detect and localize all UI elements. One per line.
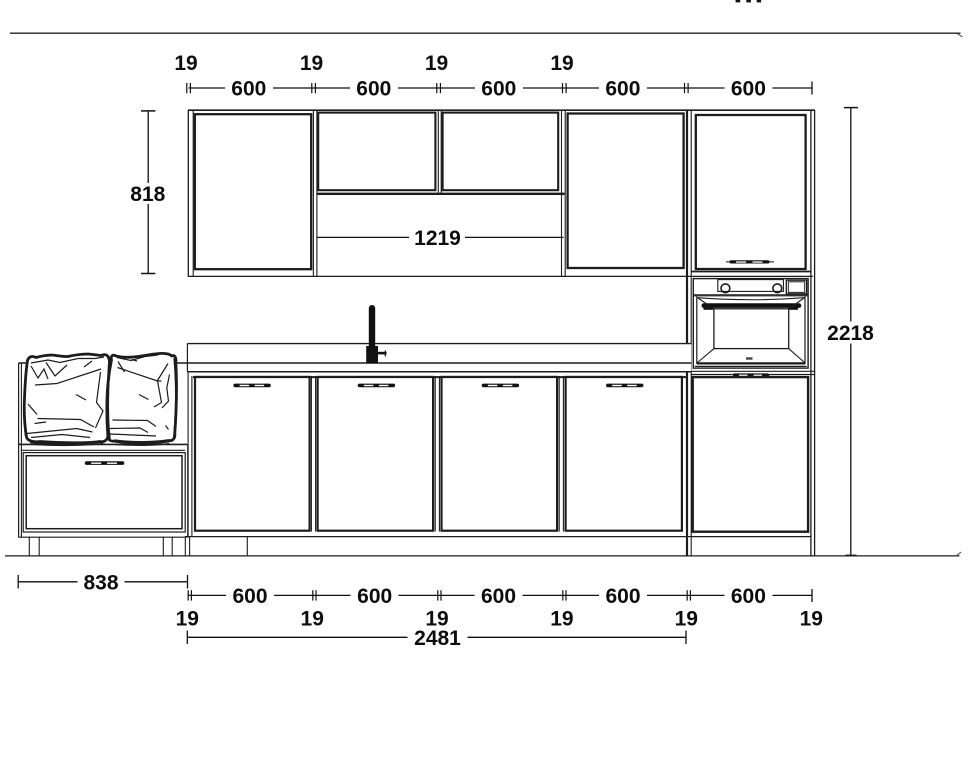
svg-text:818: 818 — [130, 183, 165, 206]
svg-text:19: 19 — [550, 52, 573, 75]
svg-text:19: 19 — [301, 608, 324, 631]
svg-text:600: 600 — [356, 78, 391, 101]
svg-text:600: 600 — [231, 78, 266, 101]
svg-text:600: 600 — [605, 585, 640, 608]
svg-text:19: 19 — [800, 608, 823, 631]
svg-text:19: 19 — [176, 608, 199, 631]
svg-text:600: 600 — [605, 78, 640, 101]
svg-text:600: 600 — [481, 585, 516, 608]
svg-text:600: 600 — [731, 585, 766, 608]
svg-text:19: 19 — [550, 608, 573, 631]
svg-text:2218: 2218 — [827, 322, 874, 345]
svg-text:19: 19 — [174, 52, 197, 75]
svg-text:600: 600 — [232, 585, 267, 608]
svg-text:1219: 1219 — [414, 227, 461, 250]
svg-text:2481: 2481 — [414, 627, 461, 650]
svg-text:19: 19 — [300, 52, 323, 75]
svg-text:600: 600 — [731, 78, 766, 101]
svg-text:19: 19 — [425, 52, 448, 75]
svg-text:19: 19 — [675, 608, 698, 631]
svg-text:600: 600 — [357, 585, 392, 608]
svg-text:838: 838 — [83, 571, 118, 594]
svg-text:600: 600 — [481, 78, 516, 101]
